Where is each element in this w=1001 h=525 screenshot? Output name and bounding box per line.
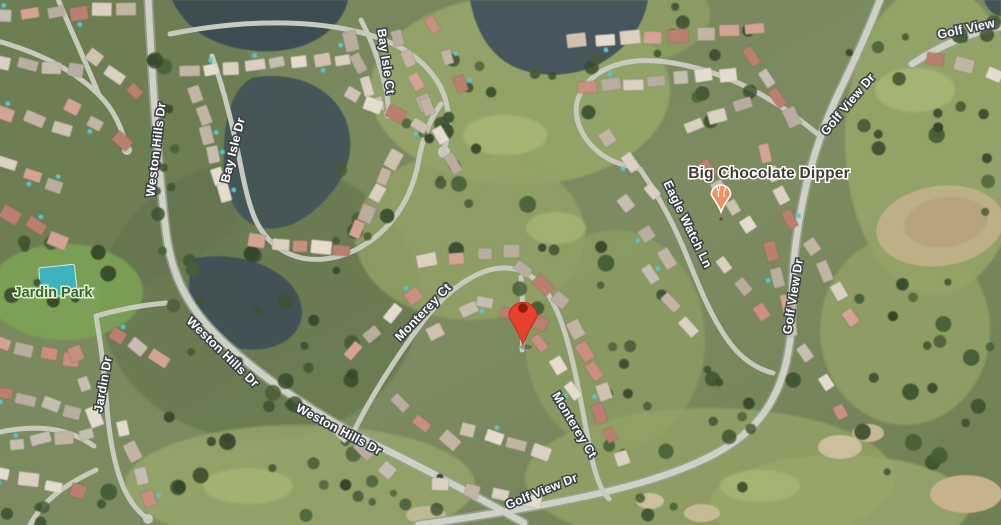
tree (888, 311, 898, 321)
tree (265, 385, 281, 401)
tree (308, 315, 319, 326)
house (566, 32, 587, 48)
park-label[interactable]: Jardin Park (14, 285, 94, 301)
house (222, 62, 239, 76)
tree (884, 468, 891, 475)
house (719, 24, 739, 36)
house (116, 3, 136, 16)
tree (591, 53, 602, 64)
pool (413, 132, 418, 137)
pool (467, 78, 472, 83)
tree (549, 245, 560, 256)
house (332, 245, 350, 257)
pin-shadow (520, 345, 532, 350)
tree (786, 372, 801, 387)
pool (39, 215, 44, 220)
tree (334, 164, 347, 177)
tree (743, 85, 757, 99)
house (623, 79, 644, 90)
tree (530, 69, 540, 79)
pool (77, 22, 82, 27)
tree (366, 475, 378, 487)
tree (981, 208, 989, 216)
tree (307, 457, 319, 469)
tree (961, 419, 970, 428)
pool (480, 309, 485, 314)
pool (214, 130, 219, 135)
tree (746, 424, 757, 435)
tree (854, 424, 870, 440)
tree (981, 175, 995, 189)
house (619, 29, 641, 45)
tree (91, 245, 106, 260)
house (313, 52, 331, 68)
tree (97, 499, 106, 508)
tree (581, 105, 595, 119)
tree (874, 130, 883, 139)
house (673, 70, 688, 84)
house (290, 55, 307, 69)
tree (670, 503, 678, 511)
tree (872, 141, 886, 155)
house (744, 23, 764, 35)
pool (592, 394, 597, 399)
tree (902, 384, 919, 401)
tree (1, 508, 13, 520)
tree (986, 342, 995, 351)
house (595, 34, 615, 47)
house (244, 58, 266, 71)
house (203, 63, 220, 77)
tree (443, 112, 454, 123)
house (668, 29, 689, 44)
tree (608, 342, 617, 351)
tree (170, 144, 179, 153)
house (926, 52, 945, 66)
tree (363, 232, 372, 241)
tree (207, 437, 216, 446)
tree (931, 447, 948, 464)
tree (978, 109, 988, 119)
tree (658, 444, 673, 459)
tree (944, 279, 951, 286)
tree (538, 244, 546, 252)
pool (655, 266, 660, 271)
tree (332, 237, 340, 245)
house (719, 68, 738, 83)
tree (399, 498, 411, 510)
house (478, 248, 492, 259)
house (694, 67, 713, 82)
pool (56, 174, 61, 179)
pool (231, 188, 236, 193)
tree (982, 153, 992, 163)
tree (437, 176, 444, 183)
house (431, 477, 449, 490)
house (67, 62, 84, 78)
tree (193, 468, 209, 484)
tree (18, 236, 31, 249)
house (0, 9, 12, 22)
tree (186, 262, 200, 276)
tree (278, 295, 292, 309)
tree (167, 183, 175, 191)
tree (691, 92, 702, 103)
tree (333, 267, 341, 275)
tree (643, 402, 652, 411)
tree (464, 199, 473, 208)
house (54, 431, 74, 445)
tree (737, 412, 747, 422)
tree (654, 50, 662, 58)
tree (303, 363, 313, 373)
tree (319, 480, 329, 490)
house (40, 346, 58, 361)
house (272, 238, 290, 251)
tree (100, 484, 117, 501)
tree (624, 340, 636, 352)
house (643, 31, 661, 44)
tree (722, 430, 737, 445)
pool (1, 3, 6, 8)
tree (196, 297, 204, 305)
tree (671, 3, 679, 11)
tree (676, 15, 690, 29)
tree (268, 464, 276, 472)
tree (857, 119, 870, 132)
pin-inner-dot (518, 303, 528, 313)
tree (173, 481, 186, 494)
pool (621, 166, 626, 171)
tree (936, 316, 952, 332)
tree (368, 498, 376, 506)
tree (34, 503, 42, 511)
tree (486, 87, 497, 98)
tree (380, 209, 394, 223)
tree (595, 241, 607, 253)
tree (475, 61, 485, 71)
tree (933, 122, 943, 132)
tree (340, 479, 351, 490)
tree (635, 493, 645, 503)
house (41, 62, 61, 75)
tree (908, 293, 918, 303)
tree (934, 335, 947, 348)
house (577, 81, 597, 94)
pool (252, 53, 257, 58)
tree (955, 101, 966, 112)
tree (846, 49, 853, 56)
tree (896, 278, 909, 291)
pool (495, 425, 500, 430)
pool (338, 43, 343, 48)
house (292, 240, 307, 252)
tree (344, 373, 359, 388)
poi-label[interactable]: Big Chocolate Dipper (688, 165, 850, 182)
tree (300, 509, 313, 522)
tree (278, 373, 294, 389)
tree (158, 246, 167, 255)
house (448, 252, 464, 265)
pool (156, 493, 161, 498)
tree (623, 389, 633, 399)
tree (902, 33, 909, 40)
tree (597, 281, 605, 289)
pool (404, 286, 409, 291)
pool (608, 72, 613, 77)
tree (872, 41, 884, 53)
tree (167, 299, 181, 313)
tree (512, 281, 527, 296)
tree (971, 399, 986, 414)
tree (709, 417, 718, 426)
pool (796, 214, 801, 219)
pool (604, 48, 609, 53)
tree (854, 294, 864, 304)
house (9, 439, 24, 451)
tree (353, 491, 364, 502)
tree (147, 54, 158, 65)
house (17, 471, 39, 487)
pool (121, 325, 126, 330)
tree (548, 72, 556, 80)
satellite-map[interactable]: Weston Hills Dr Bay Isle Dr Bay Isle Ct … (0, 0, 1001, 525)
house (179, 65, 200, 76)
pool (321, 68, 326, 73)
tree (519, 196, 536, 213)
house (503, 244, 520, 257)
tree (471, 144, 481, 154)
poi-anchor-dot (719, 217, 722, 220)
tree (598, 255, 615, 272)
tree (430, 503, 443, 516)
house (92, 2, 112, 16)
pool (208, 58, 213, 63)
tree (390, 490, 397, 497)
tree (641, 508, 654, 521)
house (310, 239, 332, 255)
tree (963, 349, 979, 365)
tree (219, 433, 236, 450)
tree (709, 49, 721, 61)
house (69, 5, 89, 21)
tree (246, 248, 261, 263)
pool (27, 182, 32, 187)
pool (87, 129, 92, 134)
tree (100, 266, 116, 282)
tree (300, 342, 308, 350)
pool (453, 51, 458, 56)
house (647, 75, 666, 87)
pool (13, 433, 18, 438)
tree (905, 434, 922, 451)
house (697, 27, 715, 40)
tree (254, 307, 262, 315)
tree (933, 109, 942, 118)
tree (619, 359, 629, 369)
tree (892, 72, 905, 85)
tree (737, 482, 748, 493)
tree (263, 401, 275, 413)
tree (705, 371, 720, 386)
pool (5, 101, 10, 106)
tree (869, 373, 879, 383)
tree (927, 383, 937, 393)
tree (923, 341, 931, 349)
tree (187, 348, 195, 356)
house (247, 232, 266, 248)
tree (451, 176, 467, 192)
house (334, 54, 351, 66)
pool (766, 278, 771, 283)
pool (635, 238, 640, 243)
tree (285, 400, 294, 409)
tree (743, 398, 755, 410)
house (601, 77, 622, 92)
tree (151, 207, 165, 221)
tree (164, 412, 175, 423)
